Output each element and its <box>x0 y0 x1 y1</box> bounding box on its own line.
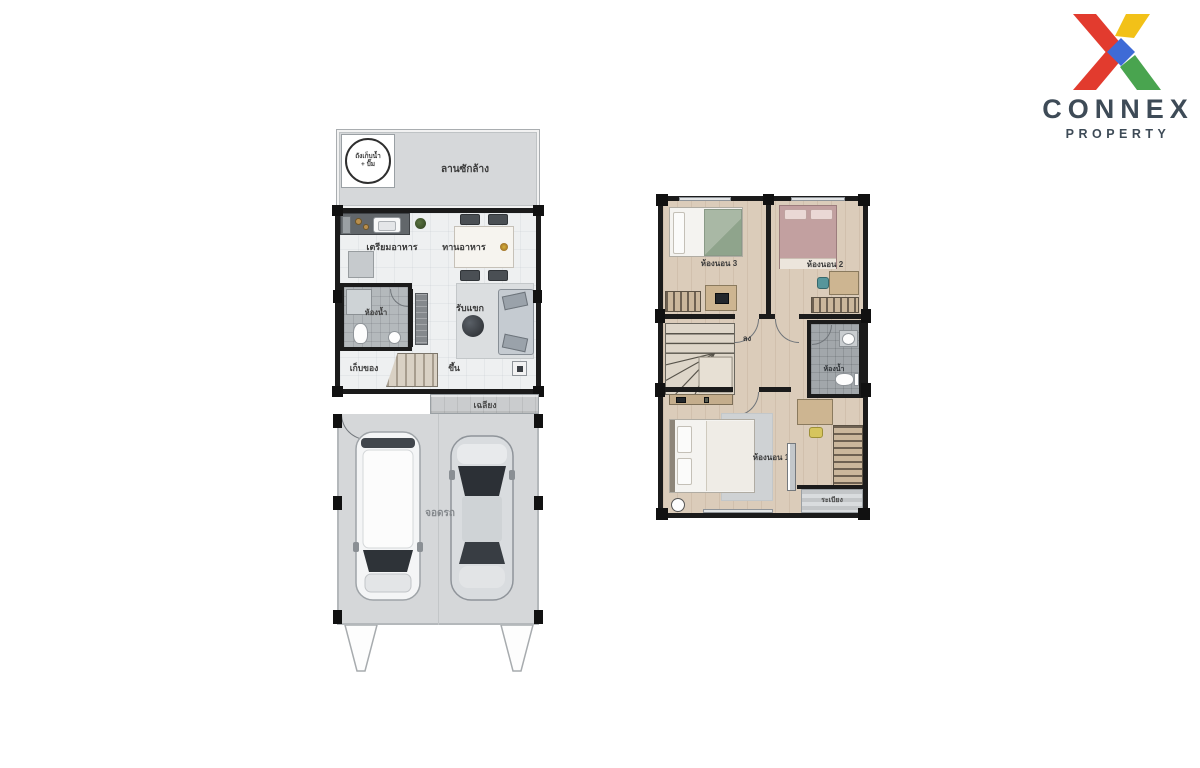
upper-bathroom: ห้องน้ำ <box>807 320 863 398</box>
water-tank-icon: ถังเก็บน้ำ + ปั๊ม <box>345 138 391 184</box>
column-post <box>333 496 342 510</box>
column-post <box>332 205 343 216</box>
bedroom3-bed <box>669 207 743 257</box>
kitchen-cabinet <box>342 216 351 234</box>
floor-plan-sheet: ถังเก็บน้ำ + ปั๊ม ลานซักล้าง เตร <box>0 0 1200 768</box>
column-post <box>332 386 343 397</box>
window-icon <box>703 509 773 513</box>
stove-burner-icon <box>363 224 369 230</box>
bedroom2-desk <box>829 271 859 295</box>
pillow-icon <box>677 426 692 453</box>
column-post <box>534 610 543 624</box>
bedroom1-dresser <box>669 394 733 405</box>
upper-bathroom-label: ห้องน้ำ <box>812 364 856 375</box>
bedroom2-wardrobe <box>811 297 859 313</box>
column-post <box>534 414 543 428</box>
bedroom3-label: ห้องนอน 3 <box>687 257 751 270</box>
second-floor-plan: ห้องนอน 3 ห้องนอน 2 ลง <box>658 196 868 518</box>
dresser-item <box>676 397 686 403</box>
ground-bathroom: ห้องน้ำ <box>340 283 412 351</box>
bathroom-door-arc <box>390 289 408 307</box>
washbasin-icon <box>388 331 401 344</box>
hall-wall <box>759 314 775 319</box>
living-label: รับแขก <box>446 301 494 315</box>
column-post <box>861 309 871 323</box>
hall-wall <box>663 314 735 319</box>
kitchen-counter <box>340 213 410 235</box>
washbasin-icon <box>842 333 855 345</box>
stairs-up <box>386 353 438 387</box>
dining-chair-icon <box>460 214 480 225</box>
side-table-icon <box>671 498 685 512</box>
plant-icon <box>415 218 426 229</box>
blanket <box>704 209 742 256</box>
column-post <box>534 496 543 510</box>
window-icon <box>679 197 731 201</box>
column-post <box>333 610 342 624</box>
brand-subtitle: PROPERTY <box>1040 127 1196 141</box>
dining-chair-icon <box>488 270 508 281</box>
bedroom-divider-wall <box>766 201 771 314</box>
pillow-icon <box>673 212 685 254</box>
sliding-door-icon <box>787 443 796 491</box>
bedroom2-label: ห้องนอน 2 <box>791 258 859 271</box>
balcony-label: ระเบียง <box>805 495 859 506</box>
column-post <box>533 205 544 216</box>
pillow-icon <box>677 458 692 485</box>
brand-name: CONNEX <box>1040 94 1196 125</box>
column-post <box>333 414 342 428</box>
parking-label: จอดรถ <box>405 506 475 521</box>
ground-bathroom-label: ห้องน้ำ <box>352 307 400 319</box>
connex-x-icon <box>1063 14 1173 90</box>
bathroom-door-arc <box>812 325 832 345</box>
column-post <box>655 383 665 397</box>
headboard <box>670 420 675 492</box>
stairs-up-label: ขึ้น <box>442 361 466 375</box>
chair-icon <box>809 427 823 438</box>
bedroom1-label: ห้องนอน 1 <box>735 451 807 464</box>
driveway-markers <box>335 625 541 673</box>
hall-wall <box>799 314 863 319</box>
column-post <box>333 290 342 303</box>
bedroom1-wall <box>663 387 733 392</box>
garage: จอดรถ <box>337 414 539 625</box>
stair-partition-wall <box>408 289 413 347</box>
water-tank-label-line2: + ปั๊ม <box>361 161 375 169</box>
storage-label: เก็บของ <box>342 361 386 375</box>
bedroom3-wardrobe <box>665 291 701 312</box>
column-post <box>861 383 871 397</box>
stairs-down <box>665 323 735 395</box>
dresser-item <box>704 397 709 403</box>
column-post <box>763 194 774 205</box>
pillow-icon <box>810 209 833 220</box>
ground-floor-plan: ถังเก็บน้ำ + ปั๊ม ลานซักล้าง เตร <box>335 128 541 673</box>
connex-logo: CONNEX PROPERTY <box>1040 14 1196 136</box>
tv-screen <box>517 366 523 372</box>
toilet-icon <box>353 323 368 344</box>
sofa-cushion <box>502 334 528 353</box>
column-post <box>858 194 870 206</box>
window-icon <box>791 197 845 201</box>
porch-label: เฉลียง <box>455 398 515 412</box>
utility-closet <box>348 251 374 278</box>
kitchen-sink-icon <box>373 217 401 233</box>
column-post <box>656 194 668 206</box>
table-flower-icon <box>500 243 508 251</box>
bedroom1-desk <box>797 399 833 425</box>
sink-basin <box>378 221 396 231</box>
column-post <box>858 508 870 520</box>
dining-chair-icon <box>488 214 508 225</box>
water-tank-label-line1: ถังเก็บน้ำ <box>355 153 381 161</box>
bedroom2-door-arc <box>775 319 799 343</box>
shelf-cabinet <box>415 293 428 345</box>
stove-burner-icon <box>355 218 362 225</box>
dining-chair-icon <box>460 270 480 281</box>
sofa-cushion <box>502 292 528 311</box>
stairs-down-label: ลง <box>737 333 757 345</box>
dining-label: ทานอาหาร <box>432 240 496 254</box>
computer-icon <box>715 293 729 304</box>
living-block: เตรียมอาหาร ทานอาหาร ห้องน้ำ เก็บของ ขึ้… <box>335 208 541 394</box>
column-post <box>656 508 668 520</box>
sofa-icon <box>498 289 534 355</box>
coffee-table-icon <box>462 315 484 337</box>
pillow-icon <box>784 209 807 220</box>
chair-icon <box>817 277 829 289</box>
tv-console-icon <box>512 361 527 376</box>
bedroom3-desk <box>705 285 737 311</box>
bedroom1-wall <box>759 387 791 392</box>
column-post <box>533 290 542 303</box>
column-post <box>655 309 665 323</box>
laundry-yard-label: ลานซักล้าง <box>405 162 525 177</box>
